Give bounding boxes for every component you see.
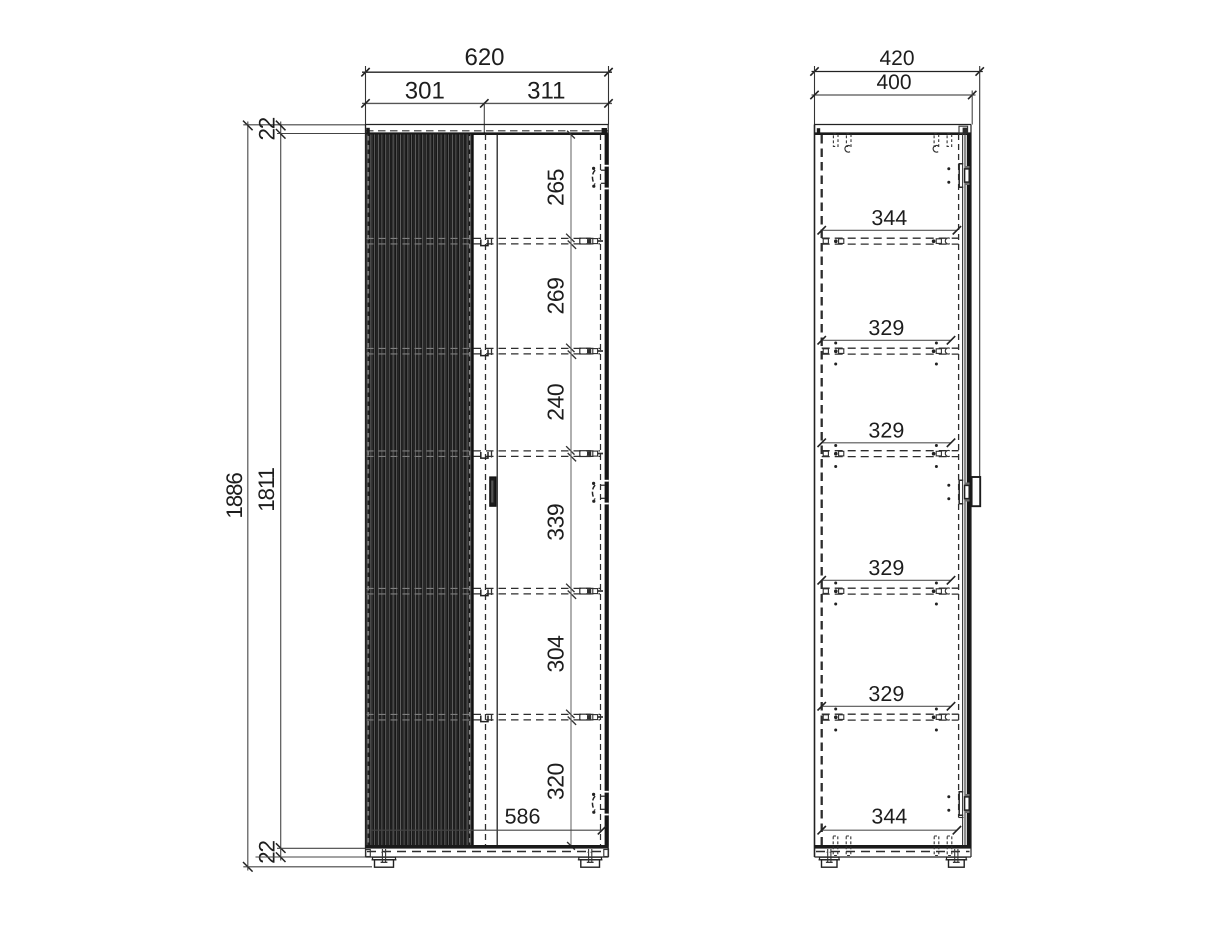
svg-text:344: 344 bbox=[871, 206, 907, 230]
svg-text:420: 420 bbox=[879, 47, 914, 70]
svg-text:329: 329 bbox=[868, 556, 904, 580]
svg-text:311: 311 bbox=[527, 77, 565, 104]
svg-text:22: 22 bbox=[254, 841, 279, 864]
svg-text:344: 344 bbox=[871, 805, 907, 829]
svg-text:1811: 1811 bbox=[254, 468, 279, 512]
svg-text:304: 304 bbox=[542, 635, 568, 673]
svg-text:329: 329 bbox=[868, 316, 904, 340]
svg-text:301: 301 bbox=[405, 77, 445, 104]
svg-text:400: 400 bbox=[876, 71, 911, 94]
svg-text:586: 586 bbox=[505, 805, 541, 829]
svg-text:1886: 1886 bbox=[222, 473, 247, 519]
svg-text:269: 269 bbox=[542, 278, 568, 315]
svg-text:320: 320 bbox=[542, 763, 568, 800]
svg-text:265: 265 bbox=[542, 169, 568, 206]
svg-text:240: 240 bbox=[542, 384, 568, 421]
svg-text:339: 339 bbox=[542, 504, 568, 541]
svg-text:329: 329 bbox=[868, 682, 904, 706]
svg-text:620: 620 bbox=[464, 44, 504, 71]
svg-text:22: 22 bbox=[254, 117, 279, 140]
svg-text:329: 329 bbox=[868, 418, 904, 442]
